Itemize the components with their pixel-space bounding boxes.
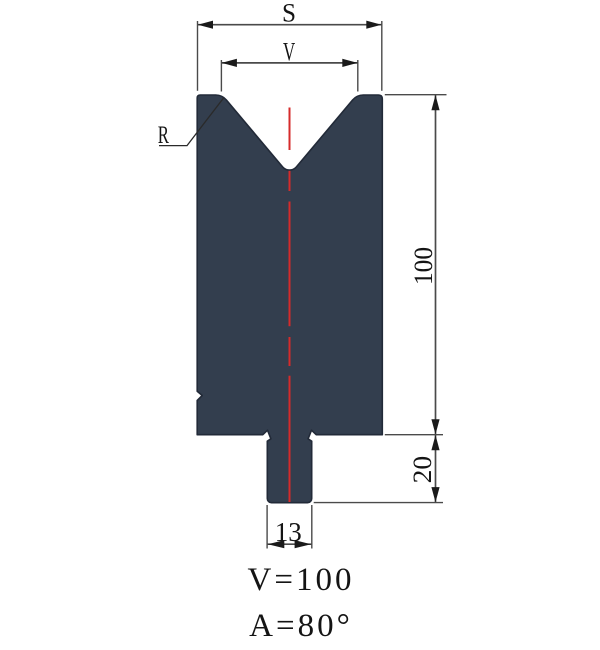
svg-text:100: 100 — [409, 247, 438, 285]
svg-text:S: S — [282, 0, 296, 28]
svg-text:R: R — [158, 122, 169, 149]
svg-text:A=80°: A=80° — [249, 608, 353, 644]
svg-text:20: 20 — [408, 456, 437, 484]
svg-text:13: 13 — [275, 517, 302, 547]
svg-text:V=100: V=100 — [248, 562, 355, 598]
svg-text:V: V — [283, 38, 295, 67]
